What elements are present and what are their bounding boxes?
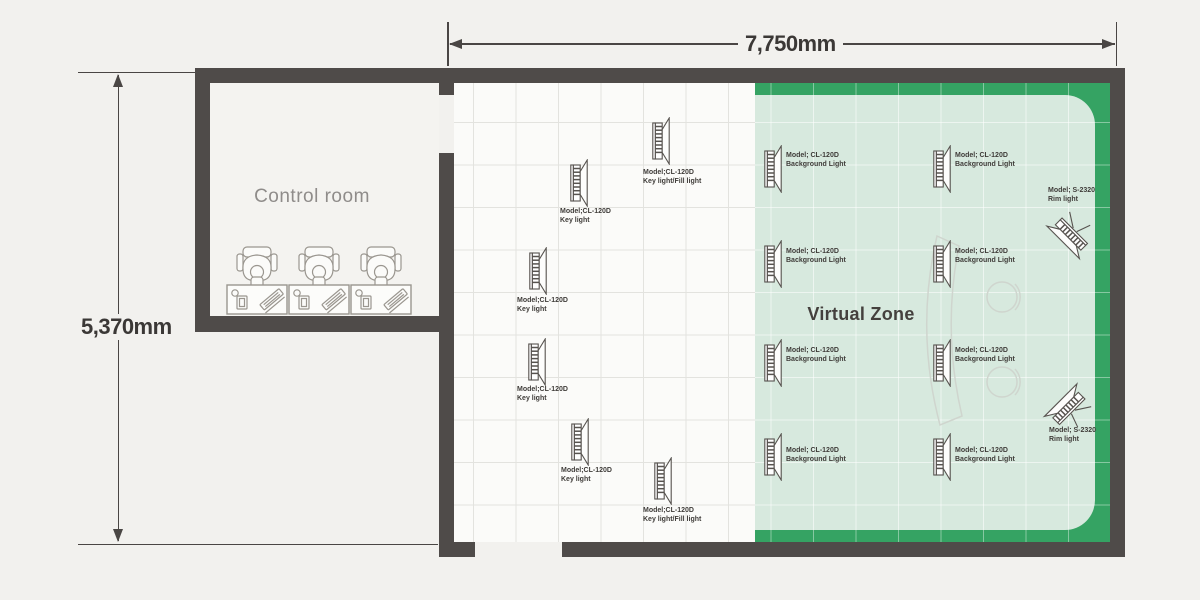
light-fixture-key	[652, 117, 670, 170]
light-label: Model; CL-120DBackground Light	[955, 151, 1015, 169]
light-label: Model; CL-120DBackground Light	[955, 247, 1015, 265]
light-model: Model;CL-120D	[517, 385, 568, 394]
wall-top	[195, 68, 1125, 83]
light-fixture-key	[529, 247, 547, 300]
light-fixture-key	[654, 457, 672, 510]
light-label: Model;CL-120DKey light	[561, 466, 612, 484]
light-model: Model; CL-120D	[955, 346, 1015, 355]
light-role: Background Light	[955, 455, 1015, 464]
light-fixture-key	[528, 338, 546, 391]
light-role: Rim light	[1048, 195, 1095, 204]
light-role: Background Light	[786, 160, 846, 169]
light-model: Model;CL-120D	[561, 466, 612, 475]
light-fixture-background	[764, 339, 782, 392]
chair-seat	[987, 367, 1017, 397]
dim-height-label: 5,370mm	[74, 314, 179, 340]
dim-height-ext-top	[78, 72, 195, 74]
dim-width-tick-right	[1116, 22, 1118, 66]
light-fixture-key	[570, 159, 588, 212]
light-model: Model; CL-120D	[786, 247, 846, 256]
dim-width-label: 7,750mm	[738, 31, 843, 57]
wall-bottom	[562, 542, 1125, 557]
wall-control-room-bottom	[195, 316, 454, 332]
wall-door-jamb	[439, 83, 454, 95]
dim-height-ext-bottom	[78, 544, 438, 546]
light-role: Key light	[517, 394, 568, 403]
dim-height-line	[118, 75, 120, 541]
light-label: Model;CL-120DKey light	[560, 207, 611, 225]
dim-height-arrow-bottom	[113, 529, 123, 542]
light-role: Background Light	[955, 355, 1015, 364]
light-label: Model; CL-120DBackground Light	[786, 446, 846, 464]
dim-width-arrow-left	[449, 39, 462, 49]
light-model: Model; S-2320	[1048, 186, 1095, 195]
dim-height-arrow-top	[113, 74, 123, 87]
light-model: Model; CL-120D	[955, 446, 1015, 455]
light-model: Model; CL-120D	[786, 446, 846, 455]
light-model: Model; S-2320	[1049, 426, 1096, 435]
light-role: Key light/Fill light	[643, 177, 701, 186]
light-role: Key light/Fill light	[643, 515, 701, 524]
light-label: Model;CL-120DKey light/Fill light	[643, 168, 701, 186]
light-role: Background Light	[955, 160, 1015, 169]
control-room-workstations	[226, 246, 416, 316]
workstation	[351, 247, 411, 314]
light-model: Model; CL-120D	[955, 151, 1015, 160]
light-fixture-background	[933, 145, 951, 198]
light-model: Model;CL-120D	[560, 207, 611, 216]
light-model: Model;CL-120D	[643, 506, 701, 515]
light-role: Key light	[517, 305, 568, 314]
workstation	[227, 247, 287, 314]
floorplan: Control room Virtual Zone 7,750mm 5,370m…	[0, 0, 1200, 600]
wall-control-room-left	[195, 68, 210, 332]
wall-right	[1110, 68, 1125, 557]
light-model: Model;CL-120D	[643, 168, 701, 177]
light-label: Model; S-2320Rim light	[1048, 186, 1095, 204]
light-fixture-background	[933, 339, 951, 392]
light-label: Model; CL-120DBackground Light	[786, 346, 846, 364]
light-label: Model; CL-120DBackground Light	[786, 151, 846, 169]
light-role: Key light	[560, 216, 611, 225]
light-label: Model; S-2320Rim light	[1049, 426, 1096, 444]
light-label: Model;CL-120DKey light	[517, 296, 568, 314]
workstation	[289, 247, 349, 314]
light-model: Model; CL-120D	[955, 247, 1015, 256]
light-role: Rim light	[1049, 435, 1096, 444]
light-label: Model;CL-120DKey light	[517, 385, 568, 403]
light-model: Model; CL-120D	[786, 151, 846, 160]
light-fixture-background	[764, 433, 782, 486]
light-fixture-background	[764, 145, 782, 198]
light-label: Model;CL-120DKey light/Fill light	[643, 506, 701, 524]
light-fixture-background	[933, 240, 951, 293]
light-role: Background Light	[786, 455, 846, 464]
dim-width-arrow-right	[1102, 39, 1115, 49]
light-model: Model; CL-120D	[786, 346, 846, 355]
wall-studio-left-foot	[439, 542, 475, 557]
light-role: Key light	[561, 475, 612, 484]
light-role: Background Light	[955, 256, 1015, 265]
control-room-label: Control room	[232, 186, 392, 208]
light-label: Model; CL-120DBackground Light	[955, 346, 1015, 364]
light-role: Background Light	[786, 355, 846, 364]
light-fixture-background	[933, 433, 951, 486]
light-fixture-background	[764, 240, 782, 293]
wall-studio-left	[439, 153, 454, 542]
light-model: Model;CL-120D	[517, 296, 568, 305]
virtual-zone-label: Virtual Zone	[781, 304, 941, 325]
light-fixture-key	[571, 418, 589, 471]
light-label: Model; CL-120DBackground Light	[786, 247, 846, 265]
light-label: Model; CL-120DBackground Light	[955, 446, 1015, 464]
chair-seat	[987, 282, 1017, 312]
light-role: Background Light	[786, 256, 846, 265]
